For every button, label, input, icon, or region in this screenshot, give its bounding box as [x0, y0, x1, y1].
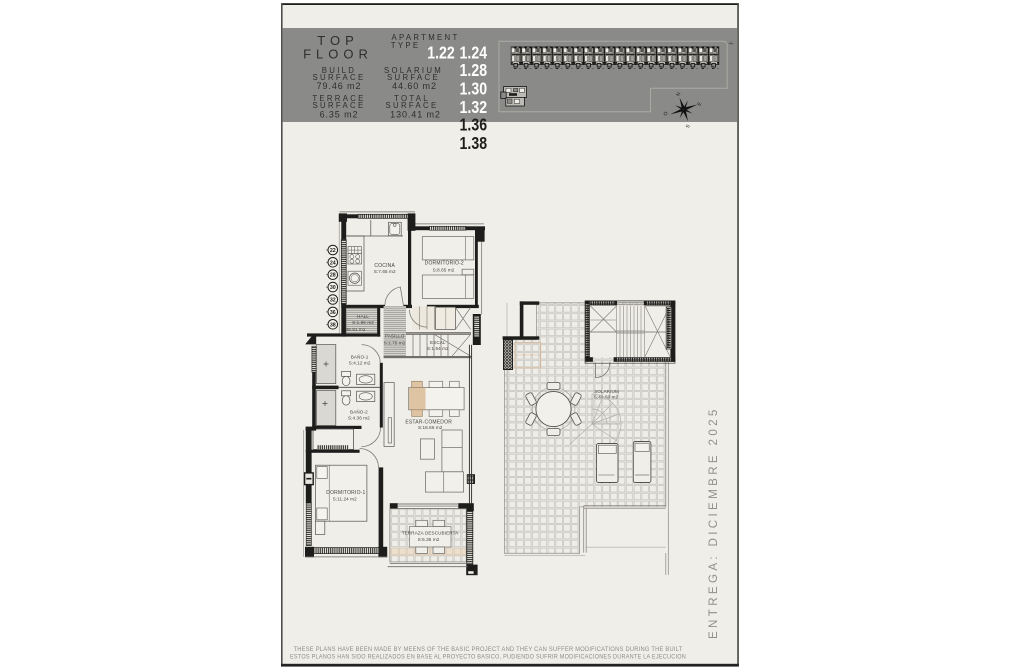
svg-text:SURFACE: SURFACE	[313, 101, 366, 110]
svg-text:TERRAZA DESCUBIERTA: TERRAZA DESCUBIERTA	[402, 531, 459, 536]
svg-text:39.91 m2: 39.91 m2	[346, 327, 366, 332]
svg-text:28: 28	[330, 273, 336, 279]
svg-text:S:4.12 m2: S:4.12 m2	[349, 361, 371, 366]
svg-text:32: 32	[330, 298, 336, 304]
svg-text:38: 38	[330, 322, 336, 328]
svg-text:S:18.66 m2: S:18.66 m2	[418, 425, 443, 430]
svg-text:SURFACE: SURFACE	[386, 101, 439, 110]
svg-text:24: 24	[330, 260, 336, 266]
svg-text:36: 36	[330, 310, 336, 316]
svg-text:44.60 m2: 44.60 m2	[392, 81, 437, 91]
svg-text:S:7.65 m2: S:7.65 m2	[374, 269, 396, 274]
svg-text:S:6.35 m2: S:6.35 m2	[418, 537, 440, 542]
svg-text:S:44.60 m2: S:44.60 m2	[594, 395, 619, 400]
svg-text:S:4.36 m2: S:4.36 m2	[348, 416, 370, 421]
svg-text:130.41 m2: 130.41 m2	[390, 110, 441, 120]
svg-text:1.38: 1.38	[460, 133, 488, 153]
svg-text:S:1.54 m2: S:1.54 m2	[427, 346, 449, 351]
svg-text:ESTOS PLANOS HAN SIDO REALIZAD: ESTOS PLANOS HAN SIDO REALIZADOS EN BASE…	[290, 654, 686, 660]
svg-text:BAÑO-2: BAÑO-2	[350, 408, 368, 414]
svg-text:22: 22	[330, 248, 336, 254]
svg-text:1.22: 1.22	[427, 43, 455, 63]
svg-text:79.46 m2: 79.46 m2	[317, 81, 362, 91]
svg-text:S:8.65 m2: S:8.65 m2	[433, 267, 455, 272]
svg-text:ESCAL: ESCAL	[430, 340, 446, 345]
svg-text:S:1.75 m2: S:1.75 m2	[384, 341, 406, 346]
svg-text:ENTREGA: DICIEMBRE 2025: ENTREGA: DICIEMBRE 2025	[707, 406, 720, 639]
svg-text:30: 30	[330, 285, 336, 291]
svg-text:1.30: 1.30	[460, 79, 488, 99]
svg-text:S:11.24 m2: S:11.24 m2	[333, 497, 357, 502]
svg-text:S:1.86 m2: S:1.86 m2	[352, 320, 374, 325]
svg-text:BAÑO-1: BAÑO-1	[351, 354, 369, 360]
svg-text:DORMITORIO-2: DORMITORIO-2	[425, 261, 464, 267]
svg-text:1.36: 1.36	[460, 115, 488, 135]
svg-text:DORMITORIO-1: DORMITORIO-1	[326, 490, 365, 496]
svg-text:6.35 m2: 6.35 m2	[320, 110, 359, 120]
svg-text:SOLARIUM: SOLARIUM	[594, 389, 619, 394]
svg-text:PASILLO: PASILLO	[385, 334, 405, 339]
svg-text:TYPE: TYPE	[391, 41, 421, 50]
svg-text:HALL: HALL	[357, 314, 369, 319]
svg-text:FLOOR: FLOOR	[303, 47, 373, 62]
svg-text:THESE PLANS HAVE BEEN MADE BY: THESE PLANS HAVE BEEN MADE BY MEENS OF T…	[294, 647, 683, 653]
svg-text:1.28: 1.28	[460, 60, 488, 80]
